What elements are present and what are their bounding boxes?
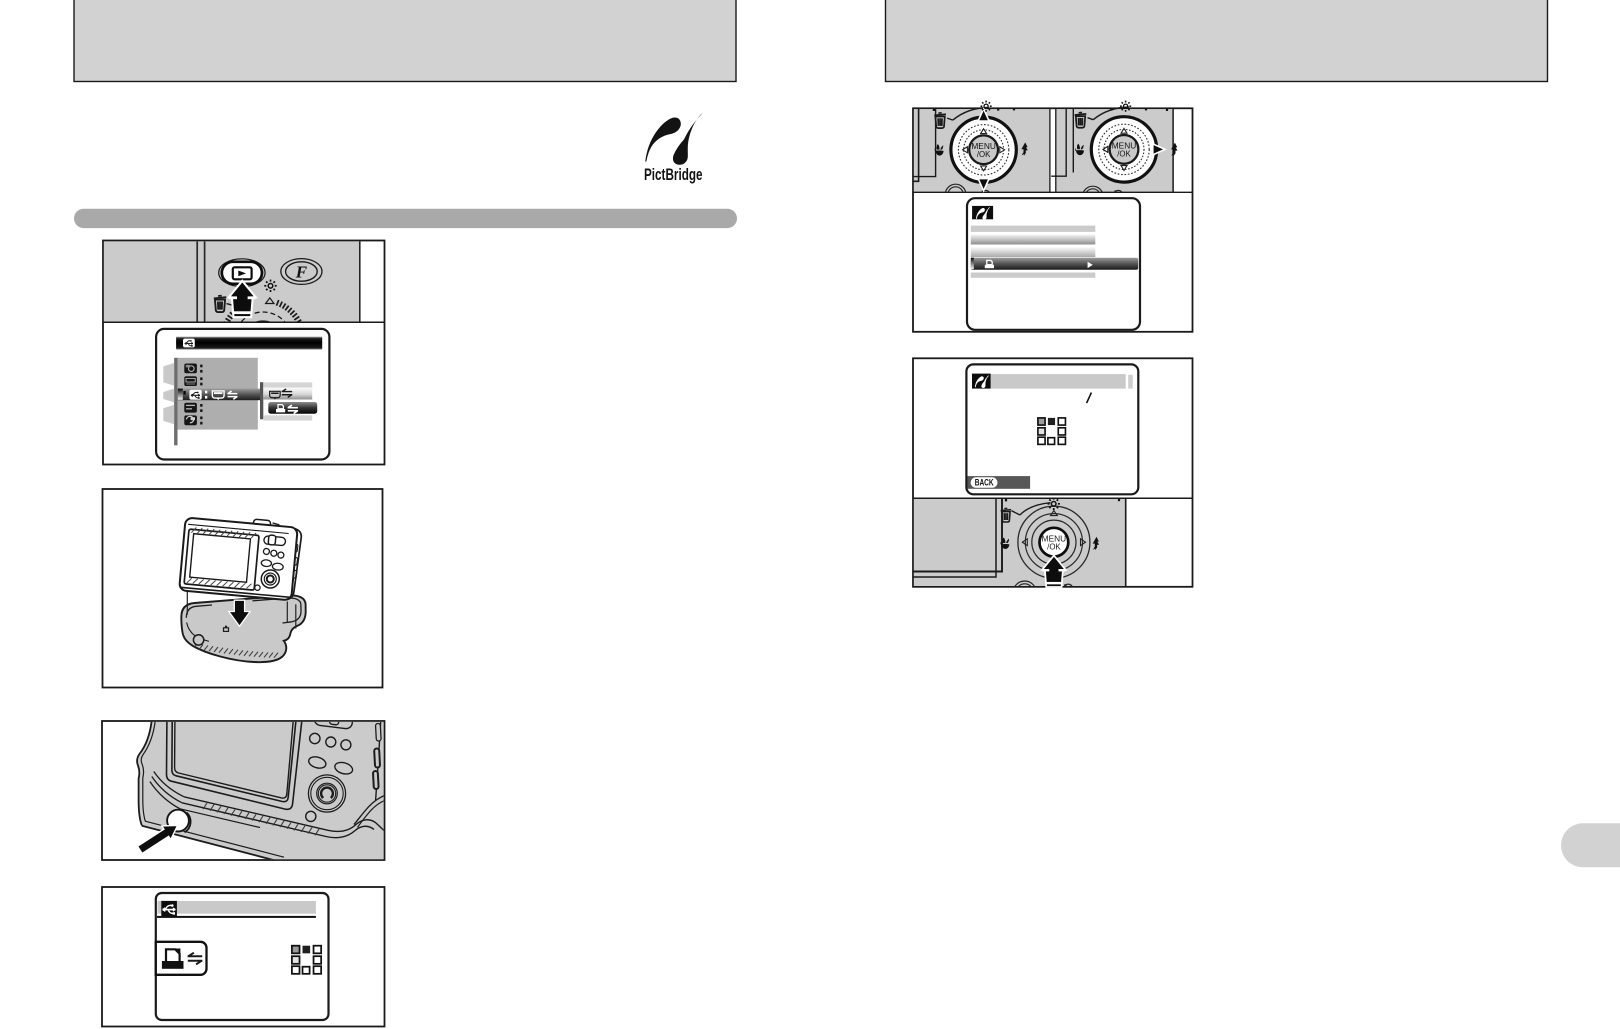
svg-text:PictBridge: PictBridge [644, 166, 703, 184]
svg-text:F: F [295, 263, 308, 282]
svg-text:BACK: BACK [975, 477, 994, 488]
